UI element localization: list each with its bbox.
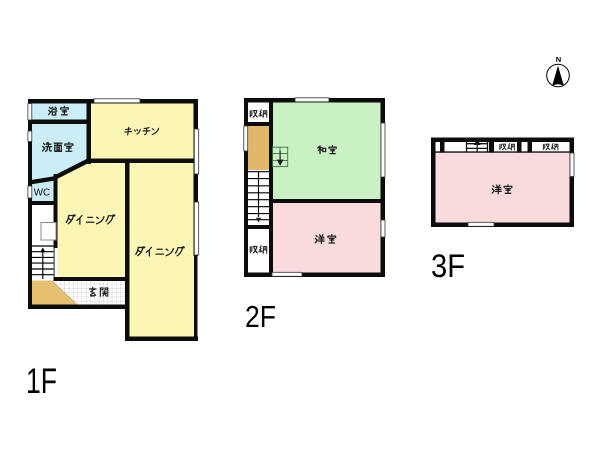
svg-text:2F: 2F [245,299,276,334]
svg-text:1F: 1F [26,362,57,401]
svg-text:N: N [556,55,561,64]
svg-text:WC: WC [34,188,50,199]
svg-text:3F: 3F [431,248,465,284]
